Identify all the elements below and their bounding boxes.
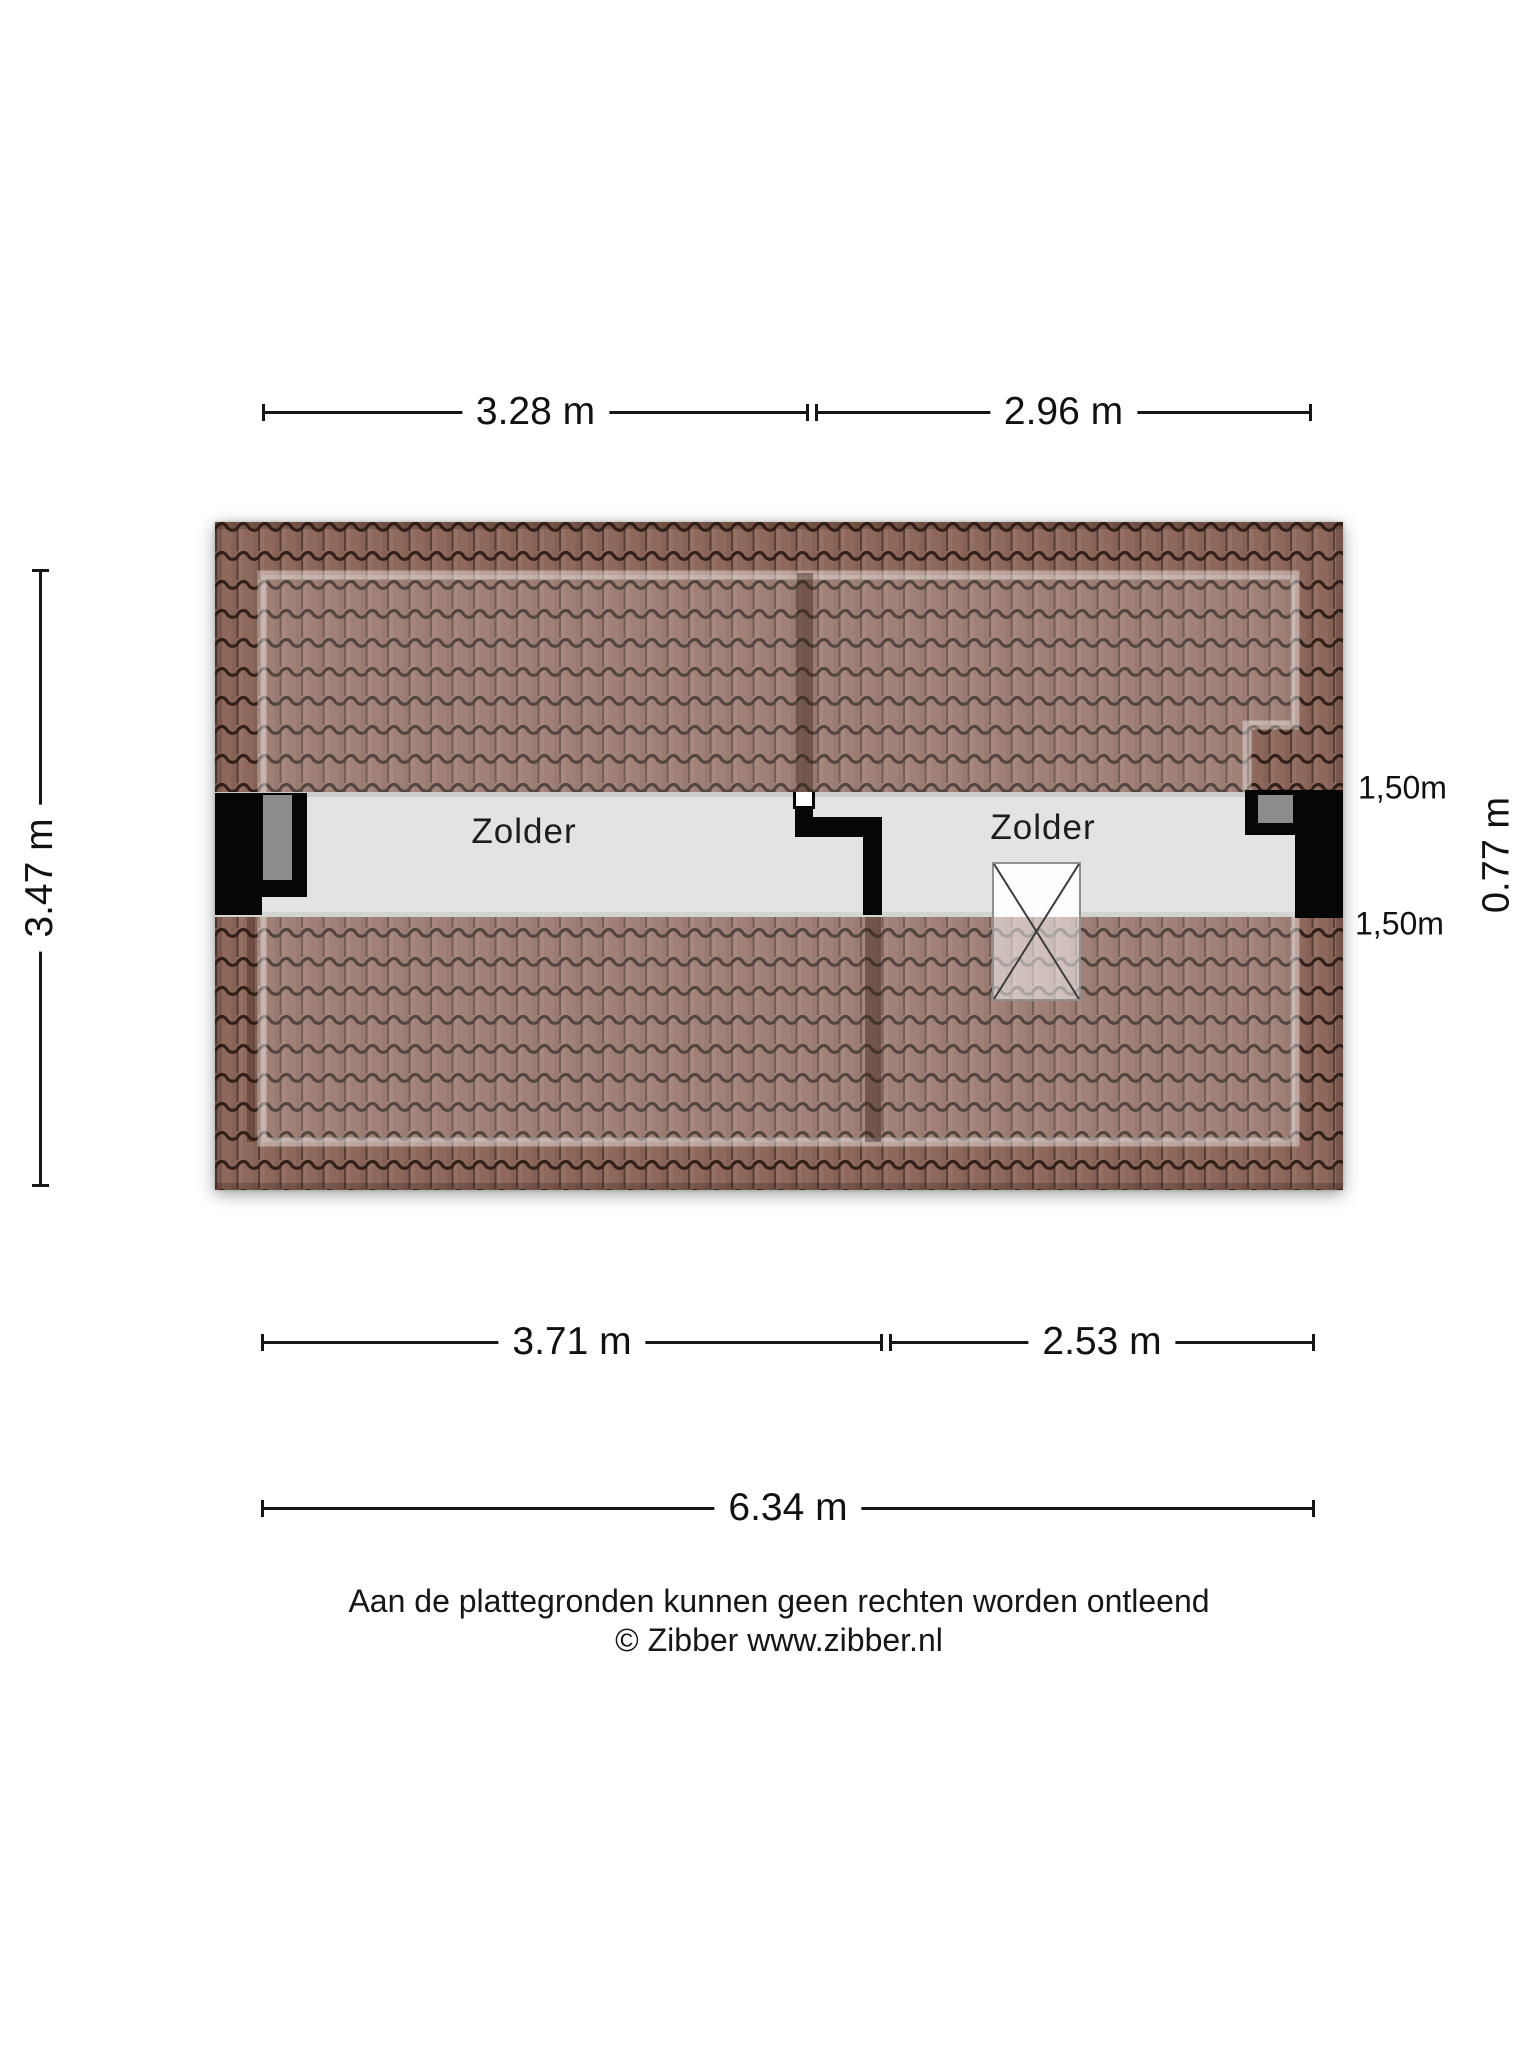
dimension-tick: [1312, 1500, 1315, 1517]
roof-seam-bottom-left: [247, 917, 255, 1142]
room-label-zolder-right: Zolder: [990, 808, 1095, 848]
dimension-tick: [262, 404, 265, 421]
dimension-bottom-left-value: 3.71 m: [498, 1320, 645, 1364]
dimension-left-height: 3.47 m: [39, 570, 42, 1186]
dimension-top-left-value: 3.28 m: [462, 390, 609, 434]
floorplan-drawing: [215, 522, 1343, 1190]
footer-disclaimer: Aan de plattegronden kunnen geen rechten…: [348, 1582, 1209, 1621]
roof-window-symbol: [993, 863, 1080, 1000]
dimension-bottom-right-value: 2.53 m: [1028, 1320, 1175, 1364]
footer-credit: © Zibber www.zibber.nl: [348, 1621, 1209, 1660]
dimension-tick: [261, 1334, 264, 1351]
roof-bottom-interior-overlay: [262, 917, 1295, 1142]
wall-middle-opening: [796, 792, 812, 806]
wall-left-inset: [263, 795, 292, 880]
dimension-overall-width: 6.34 m: [262, 1507, 1314, 1510]
dimension-tick: [889, 1334, 892, 1351]
floorplan-page: 3.28 m 2.96 m 3.47 m: [0, 0, 1536, 2048]
dimension-top-right-segment: 2.96 m: [816, 411, 1311, 414]
headroom-note-bottom: 1,50m: [1355, 906, 1444, 943]
dimension-tick: [261, 1500, 264, 1517]
dimension-right-depth: 0.77 m: [1476, 797, 1519, 913]
floor-shadow-bottom: [215, 912, 1343, 917]
headroom-note-top: 1,50m: [1358, 770, 1447, 807]
wall-left: [215, 793, 307, 915]
dimension-tick: [1309, 404, 1312, 421]
roof-seam-bottom-middle: [865, 917, 881, 1142]
wall-right-inset: [1258, 795, 1293, 823]
footer: Aan de plattegronden kunnen geen rechten…: [348, 1582, 1209, 1660]
dimension-tick: [815, 404, 818, 421]
dimension-tick: [1312, 1334, 1315, 1351]
attic-floor: [215, 792, 1343, 917]
dimension-left-height-value: 3.47 m: [18, 804, 62, 951]
floorplan-svg: [215, 522, 1343, 1190]
roof-seam-top: [797, 573, 813, 792]
dimension-bottom-left-segment: 3.71 m: [262, 1341, 882, 1344]
dimension-bottom-right-segment: 2.53 m: [890, 1341, 1314, 1344]
dimension-tick: [32, 569, 49, 572]
dimension-overall-width-value: 6.34 m: [714, 1486, 861, 1530]
dimension-tick: [880, 1334, 883, 1351]
dimension-tick: [32, 1184, 49, 1187]
roof-top-interior-overlay: [262, 575, 1295, 792]
dimension-tick: [806, 404, 809, 421]
floor-shadow-top: [215, 792, 1343, 797]
room-label-zolder-left: Zolder: [471, 812, 576, 852]
dimension-top-left-segment: 3.28 m: [263, 411, 808, 414]
dimension-top-right-value: 2.96 m: [990, 390, 1137, 434]
